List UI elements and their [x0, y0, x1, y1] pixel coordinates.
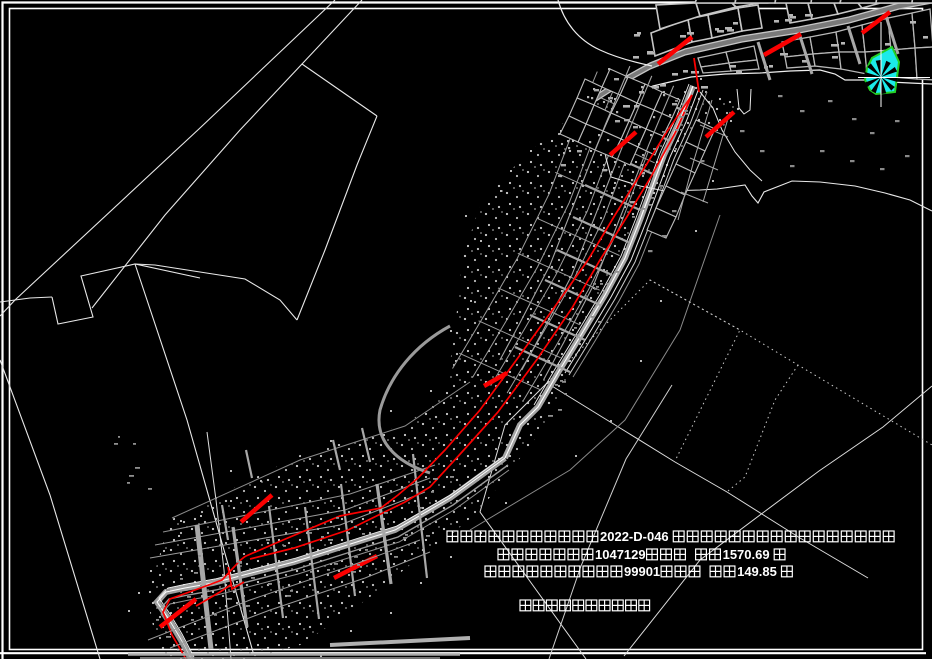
svg-text:149.85: 149.85	[737, 564, 777, 579]
svg-text:1047129: 1047129	[595, 547, 646, 562]
svg-text:99901: 99901	[624, 564, 660, 579]
svg-text:2022-D-046: 2022-D-046	[600, 529, 669, 544]
svg-text:1570.69: 1570.69	[723, 547, 770, 562]
